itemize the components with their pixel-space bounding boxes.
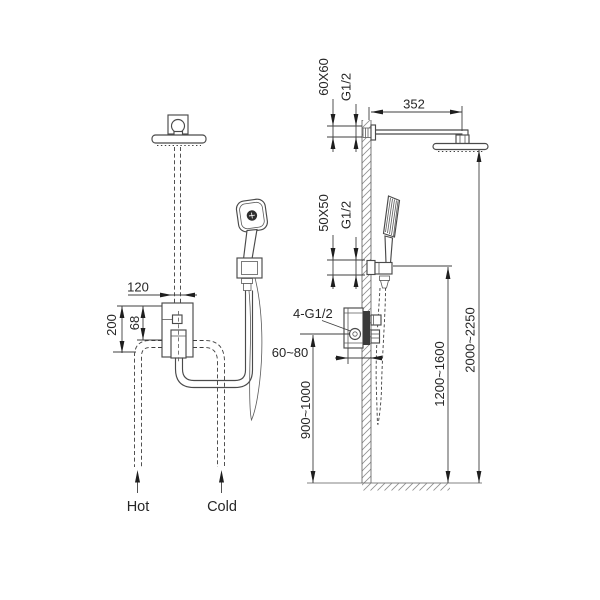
dim-60-80-label: 60~80 xyxy=(272,345,309,360)
shower-arm-side xyxy=(363,125,469,144)
hand-shower-handle xyxy=(244,230,258,260)
hot-supply-pipe xyxy=(135,341,163,468)
dim-352-label: 352 xyxy=(403,97,425,112)
dim-g12-holder-label: G1/2 xyxy=(339,201,354,229)
hand-shower-front xyxy=(235,198,268,259)
dim-120-label: 120 xyxy=(127,280,149,295)
ceiling-mount-flange xyxy=(168,115,188,137)
riser-pipe-hidden xyxy=(175,147,181,303)
cold-label: Cold xyxy=(207,499,237,515)
dim-60x60-label: 60X60 xyxy=(316,58,331,96)
hand-shower-handle-side xyxy=(385,236,393,263)
trim-plate xyxy=(363,311,370,345)
side-view: 60X60 G1/2 352 50X50 xyxy=(272,58,488,490)
dim-68-label: 68 xyxy=(127,316,142,330)
wall-section xyxy=(362,120,371,483)
cold-supply-pipe xyxy=(193,341,225,468)
ball-joint xyxy=(456,135,469,144)
dimension-60x60: 60X60 xyxy=(316,58,362,152)
diagram-canvas: 120 200 68 Hot Cold xyxy=(0,0,600,600)
floor-section xyxy=(307,483,482,491)
hanging-hose xyxy=(249,274,262,420)
hand-shower-side xyxy=(384,196,400,263)
hand-shower-holder-front xyxy=(237,258,262,291)
dim-g12-arm-label: G1/2 xyxy=(339,73,354,101)
dimension-352: 352 xyxy=(369,97,462,132)
dim-2000-2250-label: 2000~2250 xyxy=(463,307,478,372)
shower-installation-diagram: 120 200 68 Hot Cold xyxy=(0,0,600,600)
diverter-knob-side xyxy=(371,315,381,325)
front-view: 120 200 68 Hot Cold xyxy=(104,115,268,515)
dimension-68: 68 xyxy=(127,306,162,340)
rain-shower-head-front xyxy=(152,135,206,146)
rain-shower-head-side xyxy=(433,144,488,152)
dimension-g12-arm: G1/2 xyxy=(339,73,359,152)
hot-label: Hot xyxy=(127,499,150,515)
dimension-2000-2250: 2000~2250 xyxy=(463,150,482,483)
arm-escutcheon xyxy=(371,125,376,140)
dim-900-1000-label: 900~1000 xyxy=(298,381,313,439)
label-4-g12: 4-G1/2 xyxy=(293,306,351,331)
mixer-valve-front xyxy=(162,303,193,362)
mixer-valve-side xyxy=(344,308,381,348)
dim-50x50-label: 50X50 xyxy=(316,194,331,232)
cold-inlet: Cold xyxy=(207,470,237,515)
dim-200-label: 200 xyxy=(104,314,119,336)
valve-connections-label: 4-G1/2 xyxy=(293,306,333,321)
hot-inlet: Hot xyxy=(127,470,150,515)
lever-handle-side xyxy=(371,330,380,343)
dim-1200-1600-label: 1200~1600 xyxy=(432,341,447,406)
dimension-1200-1600: 1200~1600 xyxy=(393,266,452,483)
dimension-g12-holder: G1/2 xyxy=(339,201,359,289)
dimension-120: 120 xyxy=(127,280,197,298)
